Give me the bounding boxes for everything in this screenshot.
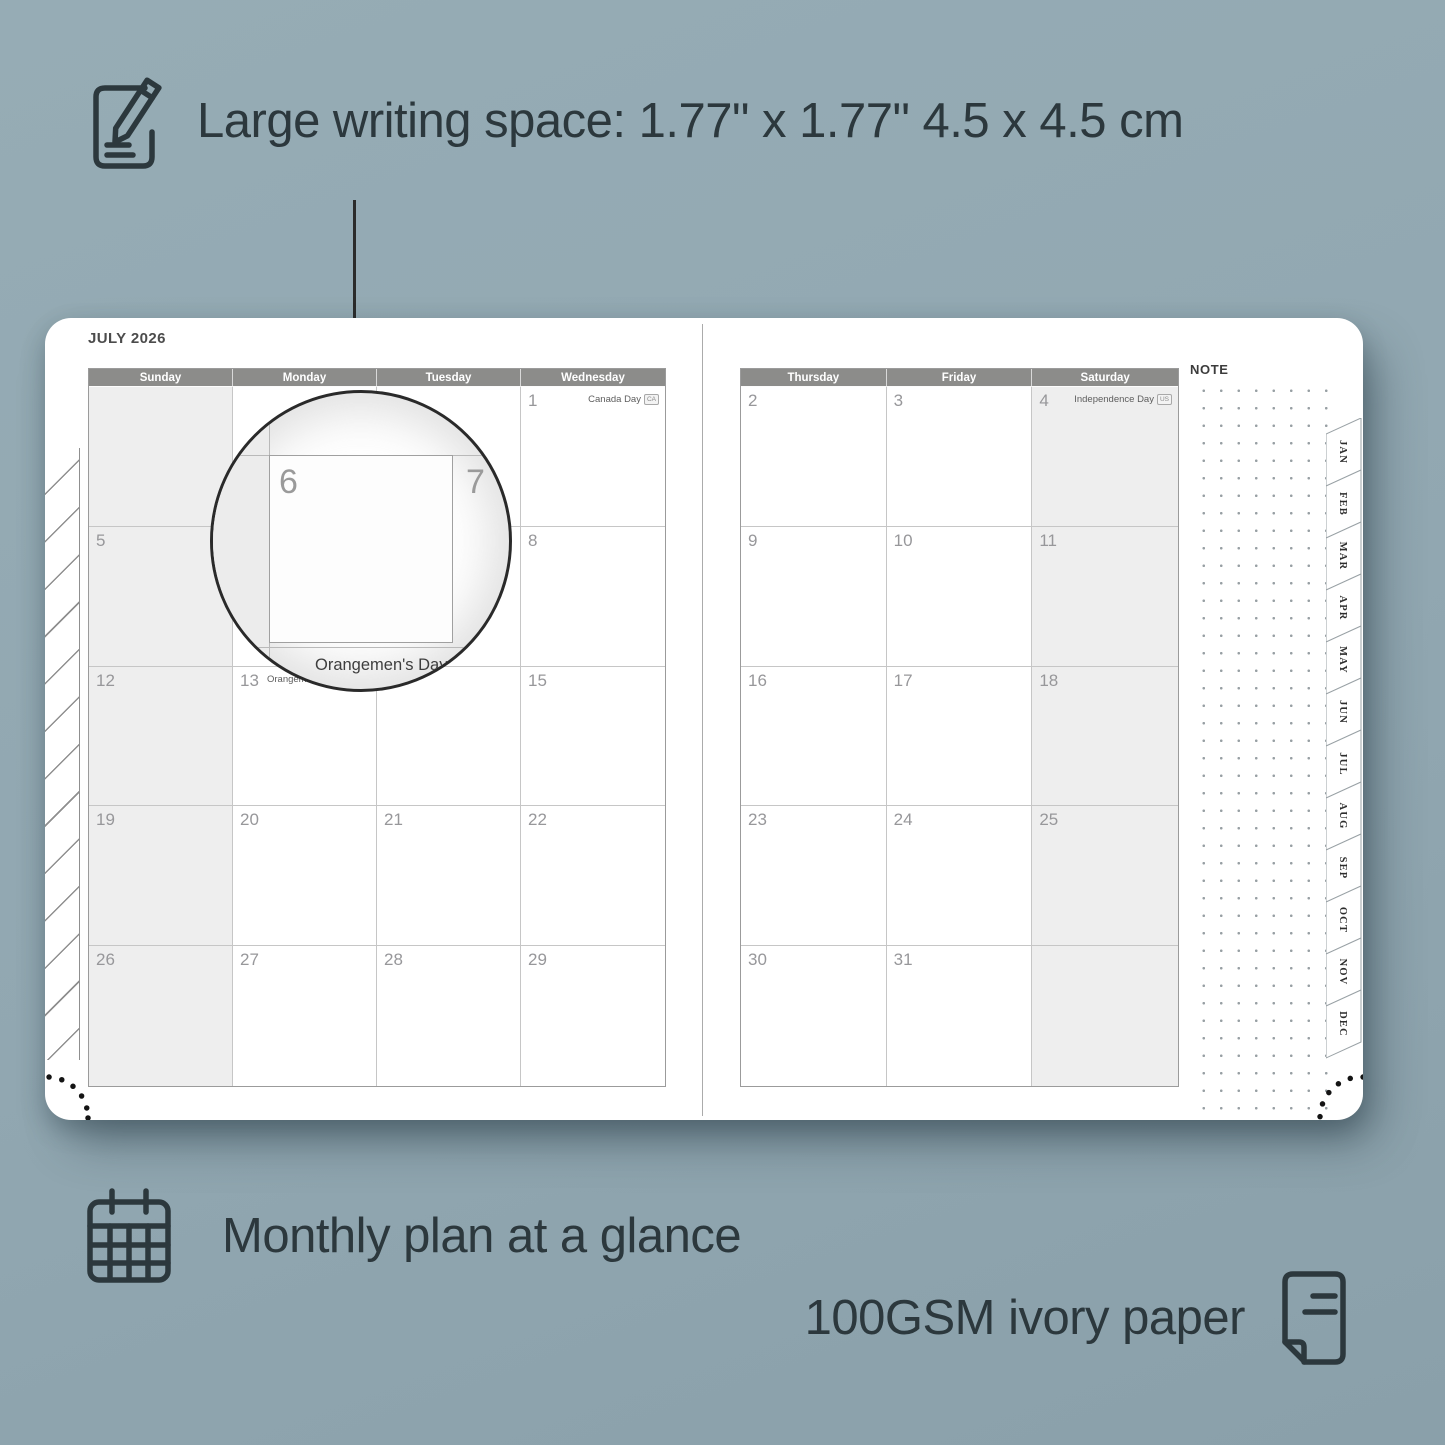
- month-tab-label: AUG: [1337, 803, 1348, 830]
- dot-grid: [1190, 376, 1328, 1110]
- day-number: 2: [748, 391, 757, 411]
- monthly-plan-label: Monthly plan at a glance: [222, 1208, 741, 1264]
- day-number: 10: [894, 531, 913, 551]
- calendar-cell: 31: [887, 946, 1033, 1086]
- calendar-cell: 29: [521, 946, 665, 1086]
- day-number: 25: [1039, 810, 1058, 830]
- monthly-plan-annotation: Monthly plan at a glance: [80, 1186, 741, 1286]
- day-header: Saturday: [1032, 369, 1178, 387]
- calendar-cell: 9: [741, 527, 887, 667]
- calendar-cell: [89, 387, 233, 527]
- country-badge: US: [1157, 394, 1172, 405]
- calendar-cell: 26: [89, 946, 233, 1086]
- magnified-shaded-column: [213, 393, 270, 689]
- calendar-cell: 20: [233, 806, 377, 946]
- holiday-label: Independence DayUS: [1074, 394, 1172, 405]
- writing-space-label: Large writing space: 1.77" x 1.77" 4.5 x…: [197, 93, 1183, 149]
- magnified-day-number: 13: [233, 649, 273, 691]
- day-number: 3: [894, 391, 903, 411]
- day-number: 4: [1039, 391, 1048, 411]
- calendar-cell: 30: [741, 946, 887, 1086]
- month-tab-label: MAY: [1337, 646, 1348, 674]
- calendar-cell: 8: [521, 527, 665, 667]
- month-tab-label: DEC: [1337, 1011, 1348, 1037]
- day-header: Monday: [233, 369, 377, 387]
- day-number: 23: [748, 810, 767, 830]
- calendar-cell: 22: [521, 806, 665, 946]
- day-number: 15: [528, 671, 547, 691]
- day-header: Sunday: [89, 369, 233, 387]
- day-number: 18: [1039, 671, 1058, 691]
- magnified-row-line: [213, 647, 509, 648]
- calendar-cell: 4Independence DayUS: [1032, 387, 1178, 527]
- calendar-cell: 14: [377, 667, 521, 807]
- paper-annotation: 100GSM ivory paper: [805, 1266, 1357, 1370]
- magnifier-circle: 6 7 13 Orangemen's Day (n.i.) UK: [210, 390, 512, 692]
- day-header: Wednesday: [521, 369, 665, 387]
- month-tab-label: JAN: [1337, 440, 1348, 464]
- magnified-holiday-label: Orangemen's Day (n.i.): [315, 656, 485, 675]
- day-number: 27: [240, 950, 259, 970]
- paper-icon: [1273, 1266, 1357, 1370]
- day-number: 5: [96, 531, 105, 551]
- calendar-cell: 28: [377, 946, 521, 1086]
- month-title: JULY 2026: [88, 330, 166, 347]
- writing-space-annotation: Large writing space: 1.77" x 1.77" 4.5 x…: [85, 70, 1183, 172]
- day-number: 30: [748, 950, 767, 970]
- calendar-cell: 11: [1032, 527, 1178, 667]
- calendar-right-page: ThursdayFridaySaturday234Independence Da…: [740, 368, 1179, 1087]
- calendar-cell: 27: [233, 946, 377, 1086]
- day-number: 26: [96, 950, 115, 970]
- calendar-cell: 1Canada DayCA: [521, 387, 665, 527]
- day-number: 17: [894, 671, 913, 691]
- month-tab-label: FEB: [1337, 492, 1348, 516]
- holiday-label: Canada DayCA: [588, 394, 659, 405]
- calendar-cell: [1032, 946, 1178, 1086]
- day-number: 20: [240, 810, 259, 830]
- calendar-cell: 16: [741, 667, 887, 807]
- calendar-cell: 24: [887, 806, 1033, 946]
- calendar-cell: 21: [377, 806, 521, 946]
- day-number: 16: [748, 671, 767, 691]
- product-image: Large writing space: 1.77" x 1.77" 4.5 x…: [0, 0, 1445, 1445]
- month-tab-label: MAR: [1337, 542, 1348, 571]
- day-number: 31: [894, 950, 913, 970]
- magnified-day-number: 7: [466, 463, 485, 502]
- day-number: 8: [528, 531, 537, 551]
- month-tab-label: OCT: [1337, 907, 1348, 933]
- calendar-cell: 23: [741, 806, 887, 946]
- day-number: 21: [384, 810, 403, 830]
- binding-hatch: [45, 448, 80, 1060]
- magnified-day-number: 6: [279, 463, 298, 502]
- country-badge: UK: [491, 658, 512, 674]
- month-tab-label: SEP: [1337, 857, 1348, 880]
- calendar-cell: 19: [89, 806, 233, 946]
- day-header: Tuesday: [377, 369, 521, 387]
- day-number: 19: [96, 810, 115, 830]
- note-section: NOTE: [1190, 362, 1328, 1110]
- day-number: 28: [384, 950, 403, 970]
- paper-label: 100GSM ivory paper: [805, 1290, 1245, 1346]
- pencil-note-icon: [85, 70, 169, 172]
- calendar-cell: 25: [1032, 806, 1178, 946]
- calendar-icon: [80, 1186, 178, 1286]
- calendar-cell: 10: [887, 527, 1033, 667]
- note-label: NOTE: [1188, 362, 1237, 380]
- month-tab-label: JUL: [1337, 752, 1348, 775]
- country-badge: CA: [644, 394, 659, 405]
- calendar-cell: 12: [89, 667, 233, 807]
- day-number: 11: [1039, 531, 1057, 551]
- calendar-cell: 15: [521, 667, 665, 807]
- day-number: 22: [528, 810, 547, 830]
- calendar-cell: 18: [1032, 667, 1178, 807]
- month-tab-label: APR: [1337, 595, 1348, 620]
- day-number: 9: [748, 531, 757, 551]
- day-header: Thursday: [741, 369, 887, 387]
- page-gutter: [702, 324, 703, 1116]
- calendar-cell: 17: [887, 667, 1033, 807]
- month-tab-label: JUN: [1337, 700, 1348, 724]
- day-number: 29: [528, 950, 547, 970]
- calendar-cell: 3: [887, 387, 1033, 527]
- day-number: 1: [528, 391, 537, 411]
- day-header: Friday: [887, 369, 1033, 387]
- month-tab-label: NOV: [1337, 959, 1348, 986]
- calendar-cell: 2: [741, 387, 887, 527]
- magnified-holiday: Orangemen's Day (n.i.) UK: [315, 656, 512, 675]
- day-number: 12: [96, 671, 115, 691]
- month-tab-strip: JANFEBMARAPRMAYJUNJULAUGSEPOCTNOVDEC: [1326, 418, 1363, 1062]
- day-number: 24: [894, 810, 913, 830]
